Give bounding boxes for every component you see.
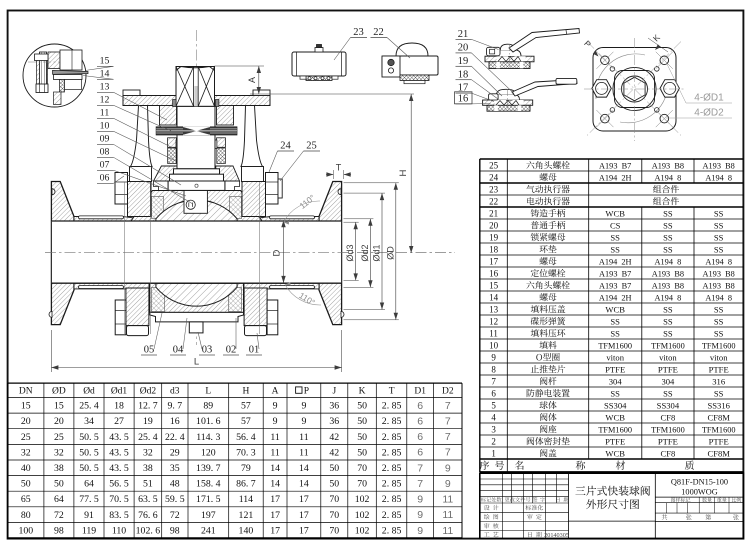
- svg-text:100: 100: [18, 526, 33, 537]
- svg-text:PTFE: PTFE: [605, 364, 625, 374]
- svg-text:T: T: [389, 387, 395, 397]
- svg-text:SS316: SS316: [707, 400, 730, 410]
- svg-text:d3: d3: [170, 387, 180, 397]
- svg-text:04: 04: [173, 345, 184, 356]
- svg-text:A193 B8: A193 B8: [652, 161, 684, 170]
- svg-text:24: 24: [489, 172, 499, 182]
- svg-text:19: 19: [458, 56, 469, 67]
- svg-text:7: 7: [417, 478, 423, 490]
- svg-text:SS: SS: [610, 328, 620, 338]
- svg-text:T: T: [336, 163, 342, 173]
- svg-text:13: 13: [100, 82, 110, 93]
- svg-text:12. 7: 12. 7: [138, 401, 158, 412]
- svg-text:27: 27: [114, 416, 124, 427]
- svg-text:2. 85: 2. 85: [382, 401, 402, 412]
- svg-text:20: 20: [458, 43, 469, 54]
- svg-text:12: 12: [489, 316, 498, 326]
- svg-text:H: H: [242, 387, 249, 397]
- svg-text:SS: SS: [714, 220, 724, 230]
- svg-text:Q81F-DN15-100: Q81F-DN15-100: [671, 477, 728, 486]
- svg-text:4: 4: [491, 412, 496, 422]
- svg-text:2. 85: 2. 85: [382, 510, 402, 521]
- svg-text:SS: SS: [663, 232, 673, 242]
- svg-text:4-ØD2: 4-ØD2: [694, 108, 724, 119]
- svg-text:72: 72: [170, 510, 180, 521]
- svg-text:11: 11: [100, 108, 110, 119]
- svg-text:50: 50: [357, 416, 367, 427]
- svg-text:121: 121: [239, 510, 254, 521]
- svg-text:Ød1: Ød1: [372, 244, 382, 261]
- svg-text:35: 35: [170, 463, 180, 474]
- svg-text:7: 7: [491, 376, 496, 386]
- svg-text:7: 7: [445, 447, 451, 459]
- svg-text:TFM1600: TFM1600: [702, 341, 736, 350]
- svg-text:16: 16: [170, 416, 180, 427]
- svg-text:70: 70: [329, 494, 339, 505]
- svg-text:114. 3: 114. 3: [196, 432, 220, 443]
- svg-text:34: 34: [84, 416, 94, 427]
- svg-text:Ød2: Ød2: [360, 244, 370, 261]
- svg-text:A193 B8: A193 B8: [703, 281, 735, 290]
- svg-text:23: 23: [353, 27, 364, 38]
- svg-text:A193 B8: A193 B8: [703, 161, 735, 170]
- svg-text:SS: SS: [663, 316, 673, 326]
- svg-text:48: 48: [170, 479, 180, 490]
- svg-text:15: 15: [21, 401, 31, 412]
- svg-text:59. 5: 59. 5: [165, 494, 185, 505]
- svg-text:L: L: [194, 357, 199, 368]
- svg-text:10: 10: [100, 121, 110, 132]
- svg-text:64: 64: [54, 494, 64, 505]
- svg-text:SS: SS: [663, 208, 673, 218]
- svg-text:17: 17: [299, 494, 309, 505]
- svg-text:120: 120: [201, 447, 216, 458]
- svg-text:18: 18: [114, 401, 124, 412]
- svg-text:50: 50: [329, 463, 339, 474]
- svg-text:SS: SS: [714, 388, 724, 398]
- svg-text:119: 119: [82, 526, 96, 537]
- svg-text:D: D: [272, 249, 283, 256]
- svg-text:ØD: ØD: [52, 387, 66, 397]
- svg-text:56. 4: 56. 4: [236, 432, 256, 443]
- svg-text:16: 16: [458, 94, 469, 105]
- svg-text:4-ØD1: 4-ØD1: [694, 93, 724, 104]
- svg-text:98: 98: [170, 526, 180, 537]
- svg-text:91: 91: [84, 510, 94, 521]
- svg-text:102: 102: [355, 510, 370, 521]
- svg-text:SS: SS: [714, 244, 724, 254]
- svg-text:101. 6: 101. 6: [196, 416, 221, 427]
- svg-text:SS: SS: [663, 220, 673, 230]
- svg-text:A194 2H: A194 2H: [599, 173, 632, 182]
- svg-text:38: 38: [143, 463, 153, 474]
- svg-text:5: 5: [491, 400, 496, 410]
- svg-text:A194 2H: A194 2H: [599, 293, 632, 302]
- svg-text:9: 9: [445, 462, 451, 474]
- svg-text:43. 5: 43. 5: [109, 463, 129, 474]
- svg-text:20: 20: [489, 220, 499, 230]
- svg-text:316: 316: [712, 376, 726, 386]
- svg-text:171. 5: 171. 5: [196, 494, 221, 505]
- svg-text:A193 B7: A193 B7: [599, 281, 631, 290]
- svg-text:2. 85: 2. 85: [382, 432, 402, 443]
- svg-text:42: 42: [329, 432, 339, 443]
- svg-text:72: 72: [54, 510, 64, 521]
- svg-text:A: A: [272, 387, 279, 397]
- svg-text:70: 70: [357, 463, 367, 474]
- svg-text:A: A: [247, 77, 257, 83]
- svg-text:TFM1600: TFM1600: [598, 425, 632, 434]
- svg-text:03: 03: [202, 345, 213, 356]
- svg-text:WCB: WCB: [605, 208, 625, 218]
- svg-text:WCB: WCB: [605, 448, 625, 458]
- svg-text:11: 11: [299, 432, 309, 443]
- svg-text:18: 18: [489, 244, 499, 254]
- svg-text:114: 114: [239, 494, 253, 505]
- svg-text:17: 17: [299, 526, 309, 537]
- svg-text:7: 7: [417, 462, 423, 474]
- svg-text:9: 9: [445, 478, 451, 490]
- svg-text:SS: SS: [610, 232, 620, 242]
- svg-text:11: 11: [442, 509, 453, 521]
- svg-text:102: 102: [355, 494, 370, 505]
- svg-text:139. 7: 139. 7: [196, 463, 221, 474]
- svg-text:TFM1600: TFM1600: [651, 425, 685, 434]
- svg-text:09: 09: [100, 134, 110, 145]
- svg-text:98: 98: [54, 526, 64, 537]
- svg-text:304: 304: [661, 376, 675, 386]
- svg-text:SS: SS: [663, 244, 673, 254]
- svg-text:2. 85: 2. 85: [382, 479, 402, 490]
- svg-text:PTFE: PTFE: [709, 364, 729, 374]
- svg-text:Ød2: Ød2: [140, 387, 157, 397]
- svg-text:9: 9: [417, 509, 423, 521]
- svg-text:SS: SS: [714, 304, 724, 314]
- svg-text:9: 9: [417, 494, 423, 506]
- svg-text:11: 11: [270, 447, 280, 458]
- svg-text:80: 80: [21, 510, 31, 521]
- svg-text:6: 6: [417, 447, 423, 459]
- svg-text:25. 4: 25. 4: [79, 401, 99, 412]
- svg-text:SS: SS: [663, 388, 673, 398]
- svg-text:9: 9: [273, 401, 278, 412]
- svg-text:SS304: SS304: [657, 400, 680, 410]
- svg-text:304: 304: [609, 376, 623, 386]
- svg-text:36: 36: [329, 401, 339, 412]
- svg-text:Ød3: Ød3: [345, 244, 355, 261]
- svg-text:TFM1600: TFM1600: [598, 341, 632, 350]
- svg-text:79: 79: [241, 463, 251, 474]
- svg-text:A194 8: A194 8: [655, 173, 682, 182]
- svg-text:19: 19: [489, 232, 499, 242]
- svg-text:50. 5: 50. 5: [79, 463, 99, 474]
- svg-text:H: H: [398, 169, 409, 176]
- svg-text:17: 17: [489, 256, 499, 266]
- svg-text:14: 14: [299, 463, 309, 474]
- svg-text:SS304: SS304: [604, 400, 627, 410]
- svg-text:86. 7: 86. 7: [236, 479, 256, 490]
- svg-text:2: 2: [491, 436, 496, 446]
- svg-text:20: 20: [54, 416, 64, 427]
- svg-text:21: 21: [489, 208, 498, 218]
- svg-text:158. 4: 158. 4: [196, 479, 221, 490]
- svg-text:50. 5: 50. 5: [79, 432, 99, 443]
- svg-text:83. 5: 83. 5: [109, 510, 129, 521]
- svg-text:241: 241: [201, 526, 216, 537]
- svg-text:Ød: Ød: [83, 387, 95, 397]
- svg-text:110: 110: [112, 526, 126, 537]
- svg-text:7: 7: [445, 415, 451, 427]
- svg-text:57: 57: [241, 416, 251, 427]
- svg-text:7: 7: [445, 431, 451, 443]
- svg-text:17: 17: [299, 510, 309, 521]
- svg-text:CF8: CF8: [660, 412, 675, 422]
- svg-text:2. 85: 2. 85: [382, 447, 402, 458]
- svg-text:PTFE: PTFE: [658, 436, 678, 446]
- svg-text:CF8: CF8: [660, 448, 675, 458]
- svg-text:24: 24: [280, 141, 291, 152]
- svg-text:CF8M: CF8M: [707, 412, 730, 422]
- svg-text:65: 65: [21, 494, 31, 505]
- svg-text:K: K: [359, 387, 366, 397]
- svg-text:1: 1: [491, 448, 496, 458]
- svg-text:76. 6: 76. 6: [138, 510, 158, 521]
- svg-text:70: 70: [329, 526, 339, 537]
- svg-text:11: 11: [442, 494, 453, 506]
- svg-text:10: 10: [489, 340, 499, 350]
- svg-text:A194 8: A194 8: [705, 173, 732, 182]
- svg-text:21: 21: [458, 29, 469, 40]
- svg-text:9: 9: [273, 416, 278, 427]
- svg-text:WCB: WCB: [605, 304, 625, 314]
- svg-text:SS: SS: [663, 304, 673, 314]
- svg-text:9: 9: [301, 416, 306, 427]
- svg-text:38: 38: [54, 463, 64, 474]
- svg-text:50: 50: [357, 432, 367, 443]
- svg-text:70. 3: 70. 3: [236, 447, 256, 458]
- svg-text:102: 102: [355, 526, 370, 537]
- svg-text:11: 11: [442, 525, 453, 537]
- svg-text:PTFE: PTFE: [605, 436, 625, 446]
- svg-text:PTFE: PTFE: [709, 436, 729, 446]
- svg-text:7: 7: [445, 400, 451, 412]
- svg-text:A193 B8: A193 B8: [652, 269, 684, 278]
- svg-text:SS: SS: [714, 232, 724, 242]
- svg-text:20: 20: [21, 416, 31, 427]
- svg-text:12: 12: [100, 95, 110, 106]
- svg-text:8: 8: [491, 364, 496, 374]
- svg-text:1000WOG: 1000WOG: [681, 487, 717, 496]
- svg-text:D2: D2: [442, 387, 454, 397]
- svg-text:43. 5: 43. 5: [109, 432, 129, 443]
- svg-text:A194 2H: A194 2H: [599, 257, 632, 266]
- svg-text:20140305: 20140305: [544, 532, 569, 539]
- svg-text:32: 32: [143, 447, 153, 458]
- svg-text:2. 85: 2. 85: [382, 526, 402, 537]
- svg-text:P: P: [304, 387, 309, 397]
- svg-text:29: 29: [170, 447, 180, 458]
- svg-text:32: 32: [54, 447, 64, 458]
- svg-text:SS: SS: [714, 208, 724, 218]
- svg-text:50: 50: [357, 401, 367, 412]
- svg-text:51: 51: [143, 479, 153, 490]
- svg-text:89: 89: [203, 401, 213, 412]
- svg-text:17: 17: [270, 510, 280, 521]
- svg-text:A193 B7: A193 B7: [599, 161, 631, 170]
- svg-text:viton: viton: [606, 352, 624, 362]
- svg-text:SS: SS: [610, 388, 620, 398]
- svg-text:50: 50: [329, 479, 339, 490]
- svg-text:viton: viton: [710, 352, 728, 362]
- svg-text:102. 6: 102. 6: [136, 526, 161, 537]
- svg-text:DN: DN: [19, 387, 33, 397]
- svg-text:6: 6: [491, 388, 496, 398]
- svg-text:32: 32: [21, 447, 31, 458]
- svg-text:TFM1600: TFM1600: [702, 425, 736, 434]
- svg-text:50: 50: [54, 479, 64, 490]
- svg-text:3: 3: [491, 424, 496, 434]
- svg-text:17: 17: [270, 494, 280, 505]
- svg-text:2. 85: 2. 85: [382, 416, 402, 427]
- svg-text:L: L: [205, 387, 211, 397]
- svg-text:2. 85: 2. 85: [382, 494, 402, 505]
- svg-text:14: 14: [489, 292, 499, 302]
- svg-text:25: 25: [21, 432, 31, 443]
- svg-text:A194 8: A194 8: [655, 257, 682, 266]
- svg-text:18: 18: [458, 69, 469, 80]
- svg-text:11: 11: [489, 328, 498, 338]
- svg-text:9: 9: [491, 352, 496, 362]
- svg-text:6: 6: [417, 431, 423, 443]
- svg-text:36: 36: [329, 416, 339, 427]
- svg-text:9: 9: [417, 525, 423, 537]
- svg-text:140: 140: [239, 526, 254, 537]
- svg-text:J: J: [332, 387, 336, 397]
- svg-text:14: 14: [270, 463, 280, 474]
- svg-text:43. 5: 43. 5: [109, 447, 129, 458]
- svg-text:70: 70: [357, 479, 367, 490]
- svg-text:01: 01: [249, 345, 260, 356]
- svg-text:11: 11: [270, 432, 280, 443]
- svg-text:25: 25: [306, 141, 317, 152]
- svg-text:08: 08: [100, 147, 110, 158]
- svg-text:A193 B8: A193 B8: [652, 281, 684, 290]
- svg-text:25: 25: [54, 432, 64, 443]
- svg-text:A194 8: A194 8: [705, 293, 732, 302]
- svg-text:63. 5: 63. 5: [138, 494, 158, 505]
- svg-text:22: 22: [489, 196, 498, 206]
- svg-text:15: 15: [100, 56, 110, 67]
- svg-text:SS: SS: [714, 328, 724, 338]
- svg-text:70: 70: [329, 510, 339, 521]
- svg-text:SS: SS: [663, 328, 673, 338]
- svg-text:57: 57: [241, 401, 251, 412]
- svg-text:14: 14: [299, 479, 309, 490]
- svg-text:15: 15: [489, 280, 499, 290]
- svg-text:40: 40: [21, 463, 31, 474]
- svg-text:A194 8: A194 8: [705, 257, 732, 266]
- svg-text:SS: SS: [714, 316, 724, 326]
- svg-text:11: 11: [299, 447, 309, 458]
- svg-text:A193 B8: A193 B8: [703, 269, 735, 278]
- svg-text:17: 17: [270, 526, 280, 537]
- svg-text:07: 07: [100, 160, 110, 171]
- svg-text:22. 4: 22. 4: [165, 432, 185, 443]
- svg-text:6: 6: [417, 415, 423, 427]
- svg-text:2. 85: 2. 85: [382, 463, 402, 474]
- svg-text:6: 6: [417, 400, 423, 412]
- svg-text:9. 7: 9. 7: [167, 401, 182, 412]
- svg-text:50: 50: [21, 479, 31, 490]
- svg-text:25: 25: [489, 160, 499, 170]
- svg-text:50. 5: 50. 5: [79, 447, 99, 458]
- svg-text:22: 22: [373, 27, 384, 38]
- svg-text:TFM1600: TFM1600: [651, 341, 685, 350]
- svg-text:64: 64: [84, 479, 94, 490]
- svg-text:25. 4: 25. 4: [138, 432, 158, 443]
- svg-text:42: 42: [329, 447, 339, 458]
- svg-text:15: 15: [54, 401, 64, 412]
- svg-text:16: 16: [489, 268, 499, 278]
- svg-text:A194 8: A194 8: [655, 293, 682, 302]
- svg-text:SS: SS: [610, 244, 620, 254]
- svg-text:CF8M: CF8M: [707, 448, 730, 458]
- svg-text:70. 5: 70. 5: [109, 494, 129, 505]
- svg-text:56. 5: 56. 5: [109, 479, 129, 490]
- svg-text:viton: viton: [659, 352, 677, 362]
- svg-text:PTFE: PTFE: [658, 364, 678, 374]
- svg-text:05: 05: [144, 345, 155, 356]
- svg-text:9: 9: [301, 401, 306, 412]
- svg-text:06: 06: [100, 173, 110, 184]
- svg-text:77. 5: 77. 5: [79, 494, 99, 505]
- svg-text:A193 B7: A193 B7: [599, 269, 631, 278]
- svg-text:13: 13: [489, 304, 499, 314]
- svg-text:197: 197: [201, 510, 216, 521]
- svg-text:CS: CS: [610, 220, 621, 230]
- svg-text:ØD: ØD: [385, 246, 395, 260]
- svg-text:D1: D1: [414, 387, 426, 397]
- svg-text:14: 14: [270, 479, 280, 490]
- svg-text:02: 02: [226, 345, 237, 356]
- svg-text:50: 50: [357, 447, 367, 458]
- svg-text:Ød1: Ød1: [111, 387, 128, 397]
- svg-text:23: 23: [489, 184, 499, 194]
- svg-text:SS: SS: [610, 316, 620, 326]
- svg-text:19: 19: [143, 416, 153, 427]
- svg-text:WCB: WCB: [605, 412, 625, 422]
